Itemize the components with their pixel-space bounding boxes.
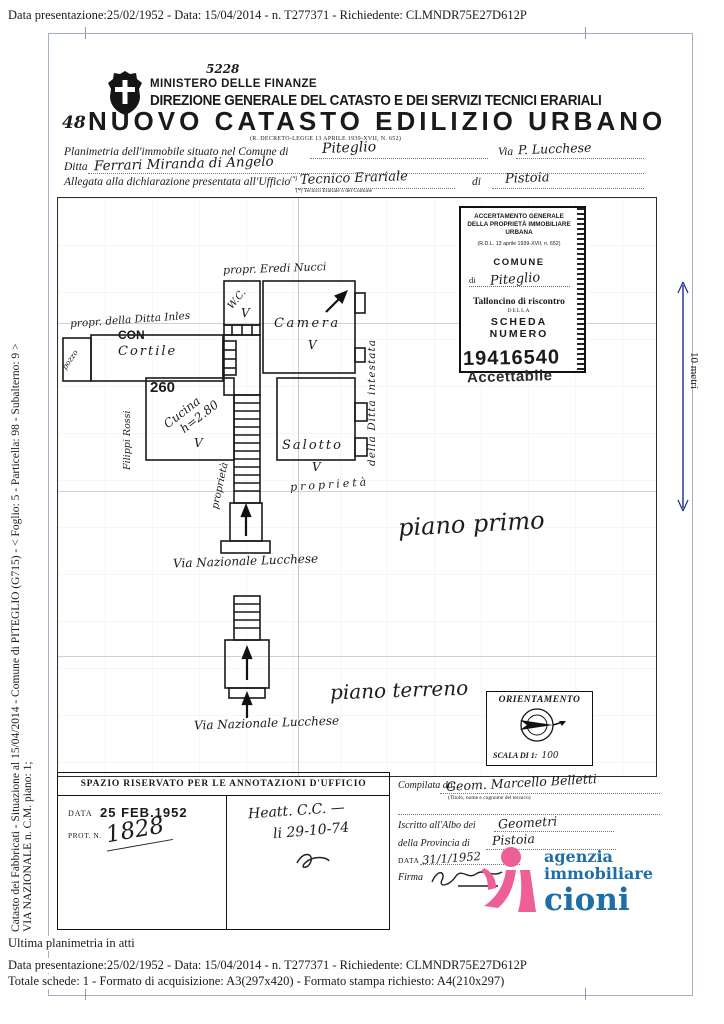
vent-check: V xyxy=(308,338,317,352)
label-cortile: Cortile xyxy=(118,344,177,359)
footer-caption: Ultima planimetria in atti xyxy=(8,936,139,951)
dimension-line xyxy=(670,280,698,516)
footer-line2: Totale schede: 1 - Formato di acquisizio… xyxy=(8,974,508,989)
label-ditta-vertical: della Ditta intestata xyxy=(366,339,378,466)
dotted-line xyxy=(440,793,660,794)
frame-tick xyxy=(585,27,586,39)
stamp-con: CON xyxy=(118,328,145,342)
label-camera: Camera xyxy=(274,316,341,331)
frame-tick xyxy=(585,988,586,1000)
talloncino-title: ACCERTAMENTO GENERALE DELLA PROPRIETÀ IM… xyxy=(466,213,572,237)
comune-value: Piteglio xyxy=(322,139,377,157)
provincia-label: della Provincia di xyxy=(398,838,470,849)
talloncino-scheda-label: SCHEDA NUMERO xyxy=(466,316,572,340)
label-piano-terreno: piano terreno xyxy=(330,676,469,705)
compiler-data-label: DATA xyxy=(398,856,419,865)
talloncino-comune-value: Piteglio xyxy=(489,270,540,288)
left-margin-caption: Catasto dei Fabbricati - Situazione al 1… xyxy=(10,242,34,932)
albo-value: Geometri xyxy=(498,813,558,831)
office-note-signature xyxy=(293,847,333,873)
talloncino-law: (R.D.L. 13 aprile 1939-XVII, n. 652) xyxy=(466,241,572,247)
talloncino-di-label: di xyxy=(469,275,476,285)
annotations-header: SPAZIO RISERVATO PER LE ANNOTAZIONI D'UF… xyxy=(58,773,389,796)
ufficio-label: Allegata alla dichiarazione presentata a… xyxy=(64,176,297,188)
prot-label: PROT. N. xyxy=(68,831,102,840)
ufficio-label-text: Allegata alla dichiarazione presentata a… xyxy=(64,176,290,188)
talloncino-comune-label: COMUNE xyxy=(466,257,572,268)
accettabile-stamp: Accettabile xyxy=(467,366,572,386)
dotted-line xyxy=(310,158,488,159)
firma-label: Firma xyxy=(398,872,423,883)
ufficio-asterisk: (*) xyxy=(290,176,297,182)
agency-logo: agenzia immobiliare cioni xyxy=(478,846,678,918)
label-filippi-rossi: Filippi Rossi xyxy=(122,410,133,470)
left-margin-line2: VIA NAZIONALE n. C.M. piano: 1; xyxy=(22,242,34,932)
office-note-line1: Heatt. C.C. — xyxy=(248,800,346,823)
logo-line3: cioni xyxy=(544,884,653,917)
di-value: Pistoia xyxy=(505,170,550,187)
logo-line2: immobiliare xyxy=(544,865,653,882)
scale-value: 100 xyxy=(541,751,558,761)
label-salotto: Salotto xyxy=(282,438,343,453)
vent-check: V xyxy=(312,460,321,474)
di-label: di xyxy=(472,176,481,188)
annotations-data-label: DATA xyxy=(68,809,93,818)
dotted-line xyxy=(492,188,644,189)
orientation-box: ORIENTAMENTO SCALA DI 1: 100 xyxy=(486,691,593,766)
albo-label: Iscritto all'Albo dei xyxy=(398,820,476,831)
footer-line1: Data presentazione:25/02/1952 - Data: 15… xyxy=(8,958,531,973)
handwritten-protocol: 5228 xyxy=(206,62,239,76)
vent-check: V xyxy=(241,306,250,320)
frame-tick xyxy=(85,27,86,39)
scale-bar-label: 10 metri xyxy=(688,352,700,389)
vent-check: V xyxy=(194,436,203,450)
annotations-divider xyxy=(226,795,227,929)
stamp-room-number: 260 xyxy=(150,379,175,396)
compass-icon xyxy=(487,705,594,745)
floor-plan-area: propr. Eredi Nucci W.C. V Camera V propr… xyxy=(57,197,657,777)
talloncino-della: DELLA xyxy=(466,308,572,314)
office-note-line2: li 29-10-74 xyxy=(272,820,349,843)
orientation-title: ORIENTAMENTO xyxy=(487,695,592,705)
document-title: NUOVO CATASTO EDILIZIO URBANO xyxy=(88,106,666,137)
agency-logo-icon xyxy=(478,846,540,916)
handwritten-sheet-number: 48 xyxy=(62,113,86,133)
ditta-label: Ditta xyxy=(64,161,88,173)
scanned-cadastral-document: Data presentazione:25/02/1952 - Data: 15… xyxy=(0,0,724,1024)
talloncino-label: Talloncino di riscontro xyxy=(466,297,572,307)
compilata-subcaption: (Titolo, nome e cognome del tecnico) xyxy=(448,795,531,801)
logo-line1: agenzia xyxy=(544,848,653,865)
frame-tick xyxy=(85,988,86,1000)
talloncino-box: ACCERTAMENTO GENERALE DELLA PROPRIETÀ IM… xyxy=(459,206,586,373)
ministry-name: MINISTERO DELLE FINANZE xyxy=(150,78,317,90)
meta-top-line: Data presentazione:25/02/1952 - Data: 15… xyxy=(8,8,527,23)
form-footnote: (*) Tecnico Erariale o del Comune xyxy=(296,188,372,194)
hatch-band xyxy=(577,208,584,371)
dotted-line xyxy=(516,158,644,159)
annotations-box: SPAZIO RISERVATO PER LE ANNOTAZIONI D'UF… xyxy=(57,772,390,930)
scale-label: SCALA DI 1: xyxy=(493,751,537,760)
left-margin-line1: Catasto dei Fabbricati - Situazione al 1… xyxy=(10,242,22,932)
via-value: P. Lucchese xyxy=(518,140,592,158)
via-label: Via xyxy=(498,146,513,158)
